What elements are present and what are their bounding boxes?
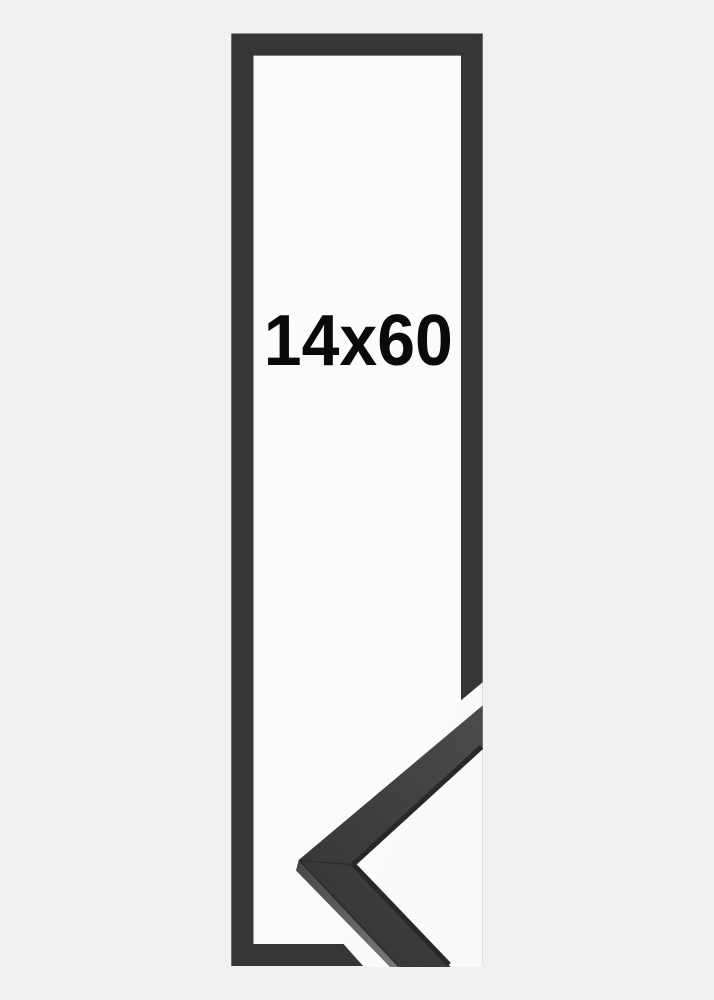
svg-text:14x60: 14x60 xyxy=(264,300,453,381)
